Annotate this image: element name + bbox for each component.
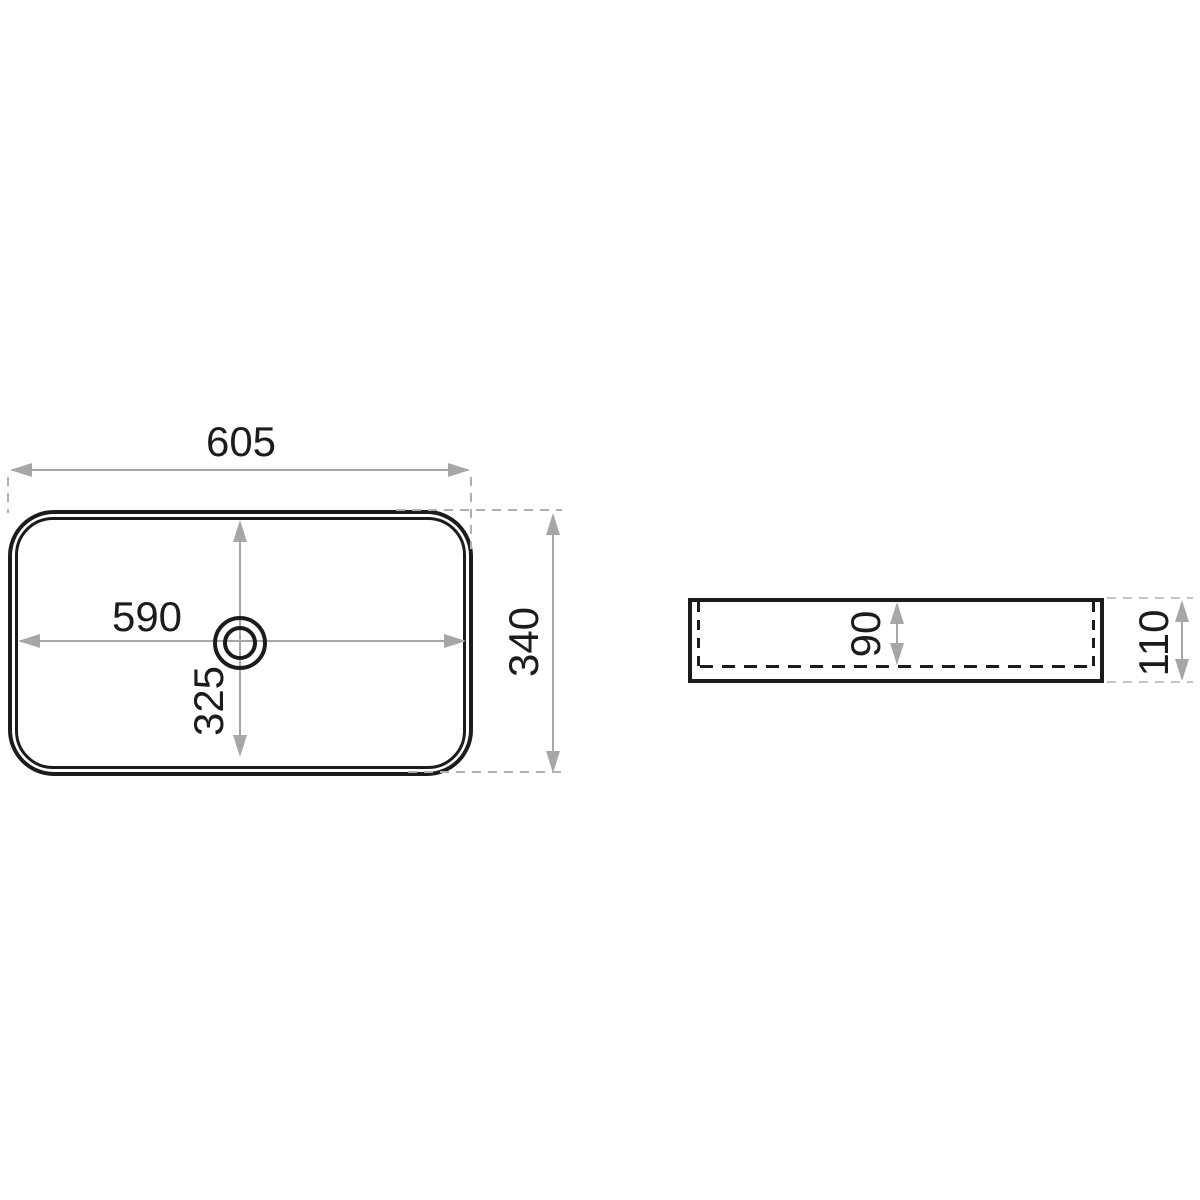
arrowhead-left-icon	[10, 463, 32, 477]
arrowhead-up-icon	[546, 513, 560, 535]
arrowhead-up-icon	[890, 602, 904, 624]
arrowhead-right-icon	[448, 463, 470, 477]
extension-line-110-top	[1107, 597, 1193, 599]
side-hidden-edge-right	[1092, 602, 1095, 666]
arrowhead-down-icon	[233, 735, 247, 757]
extension-line-605-left	[7, 477, 9, 513]
dim-label-overall-depth: 340	[503, 607, 545, 677]
extension-line-340-bottom	[408, 771, 562, 773]
extension-line-340-top	[396, 509, 562, 511]
arrowhead-right-icon	[444, 634, 466, 648]
side-hidden-edge-bottom	[700, 665, 1092, 668]
arrowhead-down-icon	[1175, 659, 1189, 681]
dim-label-overall-width: 605	[206, 421, 276, 463]
dim-label-overall-height: 110	[1133, 610, 1175, 677]
dim-line-340	[552, 516, 554, 770]
drain-inner-circle	[223, 626, 257, 660]
arrowhead-up-icon	[1175, 600, 1189, 622]
basin-technical-drawing: 605 590 325 340 90 110	[0, 0, 1200, 1200]
arrowhead-down-icon	[890, 643, 904, 665]
extension-line-110-bottom	[1107, 681, 1193, 683]
dim-label-inner-width: 590	[112, 596, 182, 638]
extension-line-605-right	[470, 477, 472, 549]
arrowhead-up-icon	[233, 520, 247, 542]
dim-line-605	[12, 469, 468, 471]
arrowhead-left-icon	[18, 634, 40, 648]
arrowhead-down-icon	[546, 751, 560, 773]
dim-label-inner-depth: 325	[188, 666, 230, 736]
side-hidden-edge-left	[697, 602, 700, 666]
dim-label-bowl-depth: 90	[845, 611, 887, 658]
